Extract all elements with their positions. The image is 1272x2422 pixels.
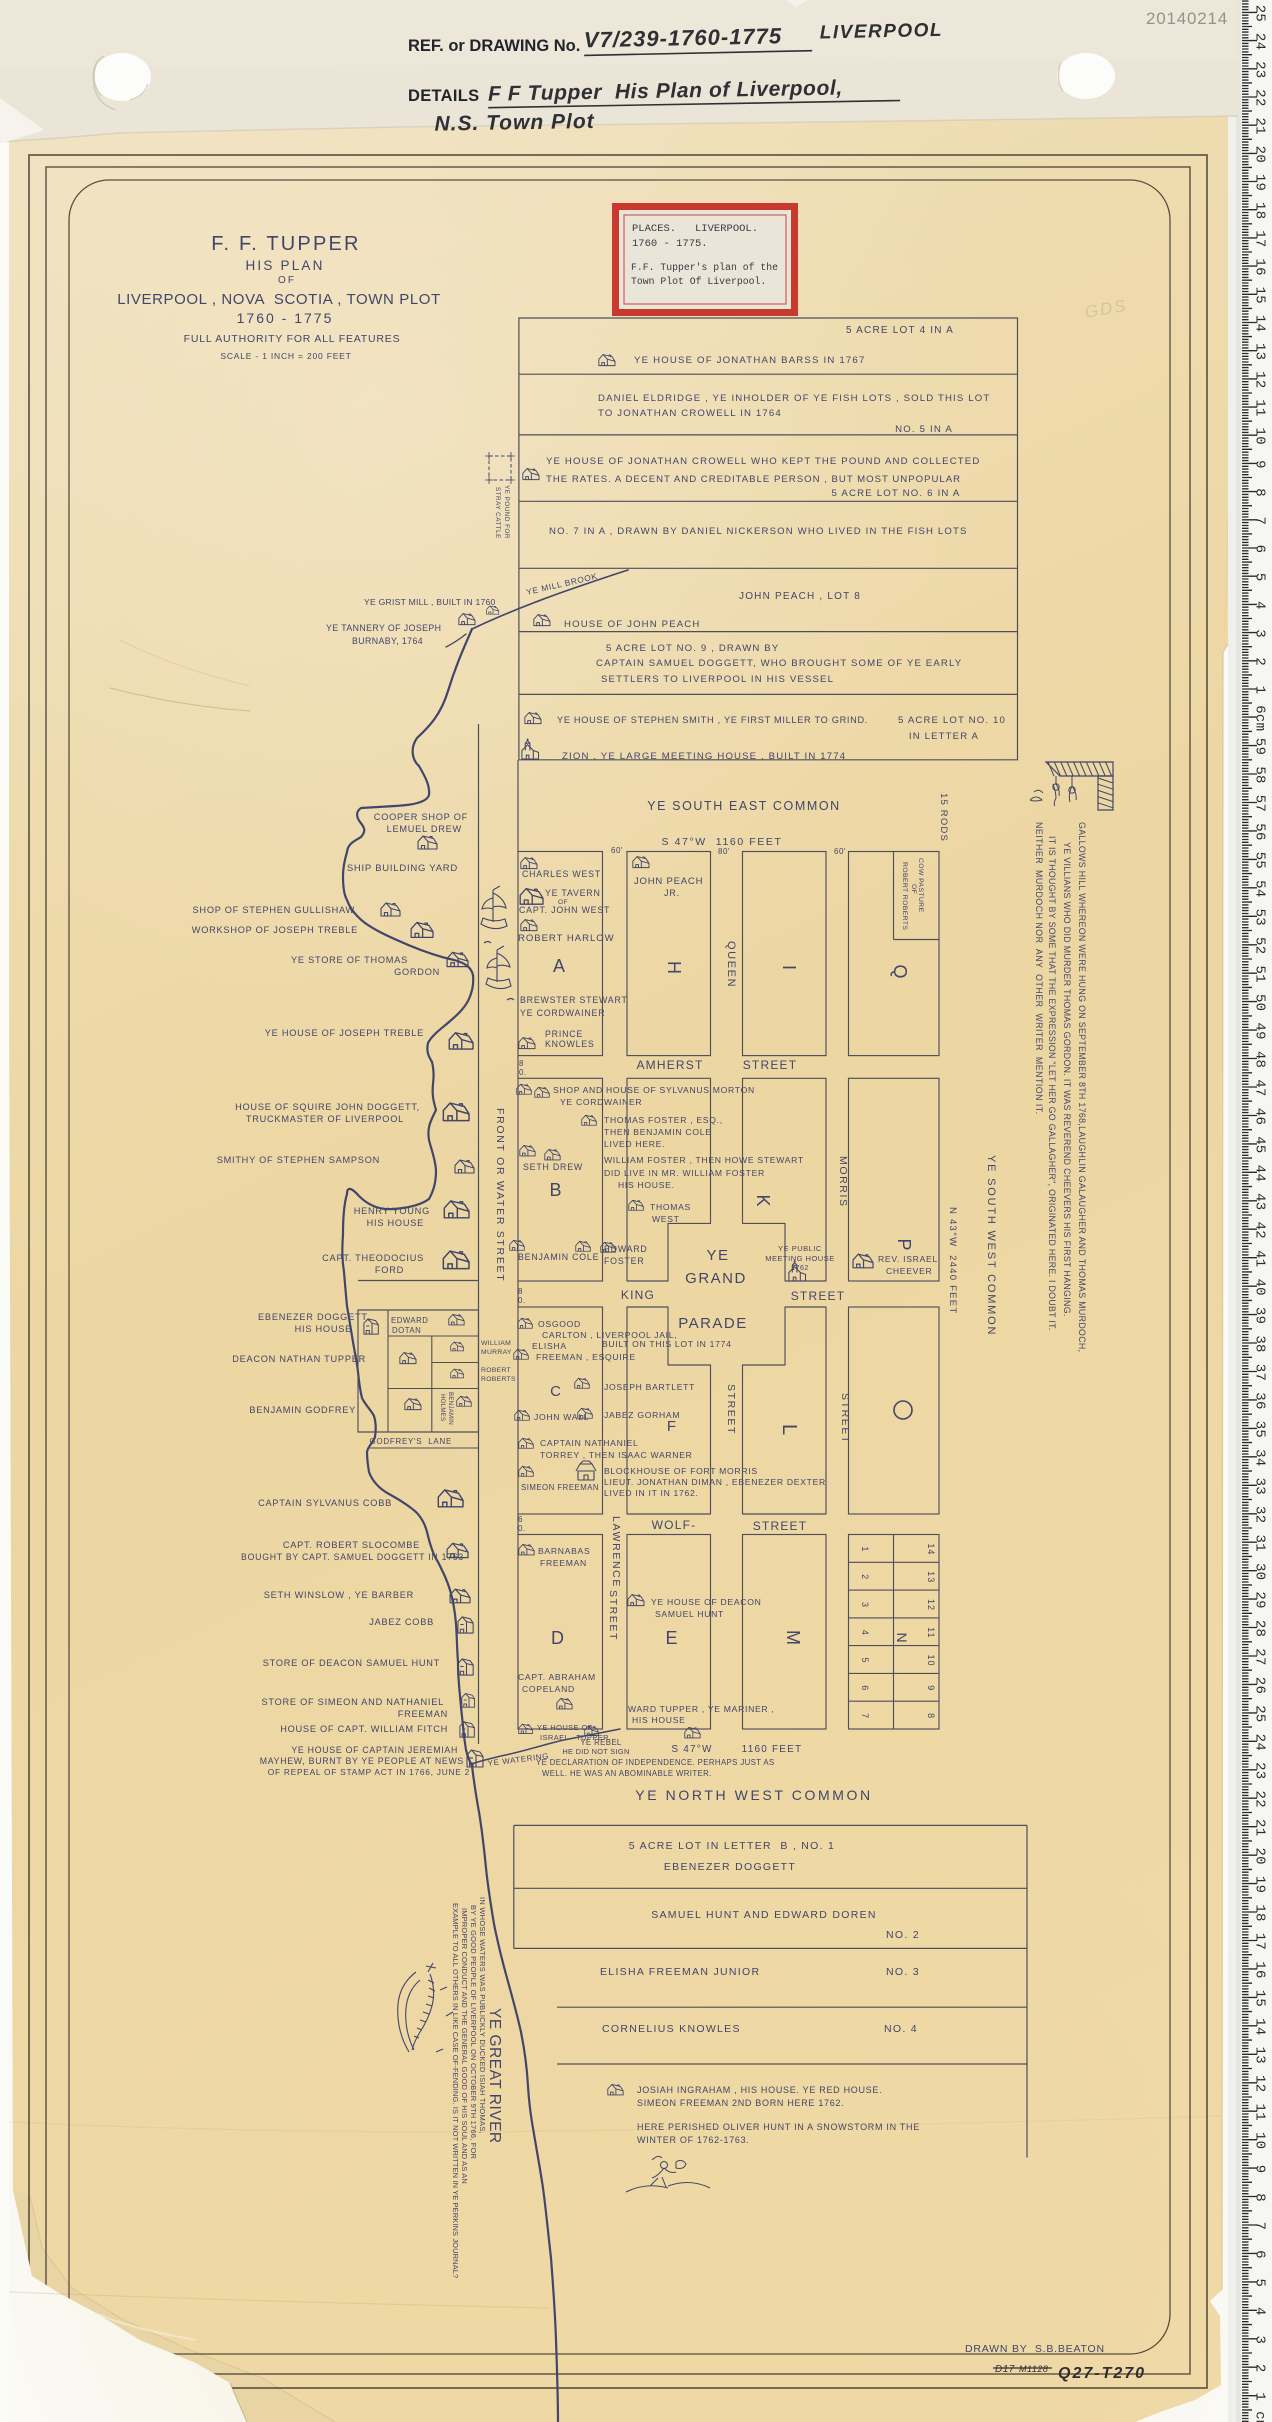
- svg-text:4: 4: [1252, 2307, 1268, 2316]
- svg-text:ELISHA FREEMAN JUNIOR: ELISHA FREEMAN JUNIOR: [600, 1966, 760, 1978]
- svg-text:OF REPEAL OF STAMP ACT IN 1766: OF REPEAL OF STAMP ACT IN 1766, JUNE 2: [268, 1767, 470, 1777]
- svg-text:C: C: [550, 1383, 562, 1400]
- svg-text:DEACON NATHAN TUPPER: DEACON NATHAN TUPPER: [232, 1354, 366, 1364]
- svg-text:THOMAS FOSTER , ESQ.,: THOMAS FOSTER , ESQ.,: [604, 1115, 723, 1125]
- svg-text:PARADE: PARADE: [678, 1315, 748, 1332]
- svg-text:13: 13: [926, 1571, 936, 1583]
- svg-text:BURNABY, 1764: BURNABY, 1764: [352, 636, 423, 646]
- svg-text:16: 16: [1252, 258, 1268, 275]
- svg-text:TORREY , THEN ISAAC WARNER: TORREY , THEN ISAAC WARNER: [540, 1450, 693, 1460]
- svg-text:7: 7: [860, 1713, 870, 1719]
- svg-text:EBENEZER DOGGETT: EBENEZER DOGGETT: [664, 1861, 796, 1873]
- svg-text:HIS PLAN: HIS PLAN: [245, 258, 324, 273]
- svg-text:HERE PERISHED OLIVER HUNT IN A: HERE PERISHED OLIVER HUNT IN A SNOWSTORM…: [637, 2122, 920, 2132]
- svg-text:OF: OF: [910, 884, 917, 894]
- svg-text:I: I: [779, 965, 799, 971]
- svg-text:NO. 4: NO. 4: [884, 2023, 918, 2035]
- svg-text:10: 10: [926, 1654, 936, 1666]
- svg-text:SETH DREW: SETH DREW: [523, 1162, 583, 1172]
- svg-text:CHARLES WEST: CHARLES WEST: [522, 869, 601, 879]
- svg-text:STREET: STREET: [743, 1058, 798, 1072]
- svg-text:H: H: [664, 961, 684, 975]
- svg-text:8: 8: [519, 1059, 524, 1068]
- svg-text:STREET: STREET: [607, 1590, 619, 1641]
- svg-text:JOSEPH BARTLETT: JOSEPH BARTLETT: [604, 1382, 695, 1392]
- svg-text:5 ACRE LOT NO. 6 IN A: 5 ACRE LOT NO. 6 IN A: [832, 488, 961, 499]
- svg-text:0.: 0.: [519, 1068, 527, 1077]
- svg-text:22: 22: [1252, 1791, 1268, 1808]
- svg-text:20: 20: [1252, 146, 1268, 163]
- svg-text:STREET: STREET: [791, 1289, 846, 1303]
- svg-text:YE HOUSE OF STEPHEN SMITH , YE: YE HOUSE OF STEPHEN SMITH , YE FIRST MIL…: [557, 715, 868, 725]
- svg-text:SIMEON FREEMAN: SIMEON FREEMAN: [521, 1483, 599, 1492]
- svg-text:DRAWN BY S.B.BEATON: DRAWN BY S.B.BEATON: [965, 2343, 1105, 2355]
- svg-text:ROBERT HARLOW: ROBERT HARLOW: [518, 933, 615, 944]
- svg-text:22: 22: [1252, 89, 1268, 106]
- svg-text:HOLMES: HOLMES: [439, 1394, 446, 1421]
- svg-text:LIVERPOOL , NOVA SCOTIA , TOW: LIVERPOOL , NOVA SCOTIA , TOWN PLOT: [117, 291, 441, 308]
- svg-text:SHIP BUILDING YARD: SHIP BUILDING YARD: [347, 863, 458, 874]
- svg-text:SHOP OF STEPHEN GULLISHAW: SHOP OF STEPHEN GULLISHAW: [193, 905, 355, 915]
- svg-text:HOUSE OF JOHN PEACH: HOUSE OF JOHN PEACH: [564, 619, 700, 630]
- svg-text:STREET: STREET: [753, 1519, 808, 1533]
- svg-text:57: 57: [1252, 795, 1268, 812]
- svg-text:MURRAY: MURRAY: [481, 1349, 512, 1356]
- svg-text:5: 5: [1252, 573, 1268, 582]
- svg-text:YE HOUSE OF JONATHAN CROWELL W: YE HOUSE OF JONATHAN CROWELL WHO KEPT TH…: [546, 456, 980, 467]
- svg-text:STREET: STREET: [839, 1393, 851, 1444]
- svg-text:STORE OF DEACON SAMUEL HUNT: STORE OF DEACON SAMUEL HUNT: [263, 1658, 440, 1668]
- svg-text:2: 2: [1252, 2364, 1268, 2373]
- svg-text:EBENEZER DOGGETT,: EBENEZER DOGGETT,: [258, 1312, 370, 1322]
- svg-text:JABEZ COBB: JABEZ COBB: [369, 1617, 434, 1627]
- svg-text:S 47°W: S 47°W: [671, 1744, 712, 1755]
- svg-text:YE SOUTH WEST COMMON: YE SOUTH WEST COMMON: [985, 1155, 997, 1336]
- svg-text:SAMUEL HUNT AND EDWARD DOREN: SAMUEL HUNT AND EDWARD DOREN: [651, 1909, 877, 1921]
- svg-text:1760 - 1775.: 1760 - 1775.: [632, 238, 708, 250]
- svg-text:LEMUEL DREW: LEMUEL DREW: [387, 824, 462, 834]
- svg-text:27: 27: [1252, 1648, 1268, 1665]
- svg-text:44: 44: [1252, 1165, 1268, 1182]
- svg-text:9: 9: [1252, 2165, 1268, 2174]
- svg-text:EXAMPLE TO ALL OTHERS IN LIKE: EXAMPLE TO ALL OTHERS IN LIKE CASE OF-FE…: [451, 1903, 460, 2278]
- svg-text:N.S. Town Plot: N.S. Town Plot: [434, 110, 595, 136]
- svg-text:GALLOWS HILL WHEREON WERE HUNG: GALLOWS HILL WHEREON WERE HUNG ON SEPTEM…: [1077, 822, 1087, 1352]
- svg-text:YE HOUSE OF JOSEPH TREBLE: YE HOUSE OF JOSEPH TREBLE: [265, 1028, 424, 1038]
- svg-text:37: 37: [1252, 1364, 1268, 1381]
- svg-text:47: 47: [1252, 1079, 1268, 1096]
- svg-text:YE DECLARATION OF INDEPENDENCE: YE DECLARATION OF INDEPENDENCE. PERHAPS …: [536, 1758, 775, 1767]
- svg-text:12: 12: [1252, 371, 1268, 388]
- svg-text:IMPROPER CONDUCT AND THE GENER: IMPROPER CONDUCT AND THE GENERAL GOOD OF…: [460, 1908, 469, 2184]
- svg-text:14: 14: [1252, 315, 1268, 332]
- svg-text:3: 3: [1252, 629, 1268, 638]
- svg-text:ROBERTS: ROBERTS: [481, 1376, 516, 1383]
- svg-text:29: 29: [1252, 1591, 1268, 1608]
- svg-text:STREET: STREET: [725, 1384, 737, 1435]
- svg-text:19: 19: [1252, 174, 1268, 191]
- svg-text:12: 12: [1252, 2075, 1268, 2092]
- svg-text:YE: YE: [706, 1247, 729, 1264]
- svg-text:ROBERT ROBERTS: ROBERT ROBERTS: [901, 862, 908, 930]
- svg-text:REV. ISRAEL: REV. ISRAEL: [878, 1254, 938, 1264]
- svg-text:WILLIAM: WILLIAM: [481, 1340, 511, 1347]
- svg-text:YE TANNERY OF JOSEPH: YE TANNERY OF JOSEPH: [326, 623, 441, 633]
- svg-text:SHOP AND HOUSE OF SYLVANUS MOR: SHOP AND HOUSE OF SYLVANUS MORTON: [553, 1085, 755, 1095]
- svg-text:51: 51: [1252, 965, 1268, 982]
- svg-text:L: L: [778, 1424, 800, 1436]
- svg-text:YE NORTH WEST COMMON: YE NORTH WEST COMMON: [635, 1787, 872, 1803]
- svg-text:CAPT. THEODOCIUS: CAPT. THEODOCIUS: [322, 1253, 424, 1263]
- svg-text:54: 54: [1252, 880, 1268, 897]
- svg-text:NO. 7 IN A , DRAWN BY DANIEL N: NO. 7 IN A , DRAWN BY DANIEL NICKERSON W…: [549, 526, 968, 537]
- svg-text:55: 55: [1252, 852, 1268, 869]
- svg-text:DETAILS: DETAILS: [408, 87, 479, 105]
- svg-text:MAYHEW, BURNT BY YE PEOPLE AT: MAYHEW, BURNT BY YE PEOPLE AT NEWS: [260, 1756, 464, 1766]
- svg-text:39: 39: [1252, 1307, 1268, 1324]
- svg-text:Town Plot Of Liverpool.: Town Plot Of Liverpool.: [631, 276, 766, 287]
- svg-text:YE HOUSE OF DEACON: YE HOUSE OF DEACON: [651, 1597, 762, 1607]
- svg-text:36: 36: [1252, 1392, 1268, 1409]
- svg-text:IT IS THOUGHT BY SOME THAT THE: IT IS THOUGHT BY SOME THAT THE EXPRESSIO…: [1047, 836, 1057, 1331]
- svg-text:LIVED HERE.: LIVED HERE.: [604, 1139, 665, 1149]
- svg-text:CAPTAIN SYLVANUS COBB: CAPTAIN SYLVANUS COBB: [258, 1498, 392, 1508]
- svg-text:1160 FEET: 1160 FEET: [742, 1744, 803, 1755]
- svg-text:YE GREAT RIVER: YE GREAT RIVER: [486, 2008, 503, 2144]
- svg-text:TO JONATHAN CROWELL IN 1764: TO JONATHAN CROWELL IN 1764: [598, 408, 782, 419]
- svg-text:M: M: [783, 1630, 803, 1646]
- svg-text:cm: cm: [1252, 2411, 1268, 2422]
- svg-text:MEETING HOUSE: MEETING HOUSE: [765, 1254, 834, 1263]
- svg-text:5 ACRE LOT NO. 10: 5 ACRE LOT NO. 10: [898, 715, 1006, 726]
- svg-text:9: 9: [926, 1685, 936, 1691]
- svg-text:N 43°W 2440 FEET: N 43°W 2440 FEET: [947, 1207, 958, 1314]
- svg-text:ELISHA: ELISHA: [532, 1341, 567, 1351]
- svg-text:19: 19: [1252, 1876, 1268, 1893]
- svg-text:THE RATES. A DECENT AND CREDIT: THE RATES. A DECENT AND CREDITABLE PERSO…: [546, 474, 961, 485]
- svg-text:1762: 1762: [791, 1265, 809, 1272]
- svg-text:SETH WINSLOW , YE BARBER: SETH WINSLOW , YE BARBER: [264, 1590, 414, 1600]
- svg-text:M1128: M1128: [1019, 2364, 1048, 2374]
- svg-text:4: 4: [860, 1630, 870, 1636]
- svg-text:GORDON: GORDON: [394, 967, 440, 977]
- svg-text:HIS HOUSE.: HIS HOUSE.: [618, 1180, 675, 1190]
- svg-text:TRUCKMASTER OF LIVERPOOL: TRUCKMASTER OF LIVERPOOL: [246, 1114, 404, 1124]
- svg-text:COOPER SHOP OF: COOPER SHOP OF: [374, 812, 468, 822]
- svg-text:24: 24: [1252, 1734, 1268, 1751]
- svg-text:21: 21: [1252, 117, 1268, 134]
- svg-text:0.: 0.: [518, 1296, 526, 1305]
- svg-text:N: N: [894, 1632, 910, 1643]
- svg-text:12: 12: [926, 1599, 936, 1611]
- svg-text:E: E: [665, 1628, 678, 1648]
- svg-text:D17: D17: [995, 2364, 1015, 2375]
- svg-text:PLACES. LIVERPOOL.: PLACES. LIVERPOOL.: [632, 223, 758, 235]
- svg-text:HENRY YOUNG: HENRY YOUNG: [354, 1206, 430, 1216]
- svg-text:JOSIAH INGRAHAM , HIS HOUSE. Y: JOSIAH INGRAHAM , HIS HOUSE. YE RED HOUS…: [637, 2085, 882, 2095]
- svg-text:WINTER OF 1762-1763.: WINTER OF 1762-1763.: [637, 2135, 750, 2145]
- svg-text:LIVERPOOL: LIVERPOOL: [820, 20, 944, 44]
- svg-text:WELL. HE WAS AN ABOMINABLE WRI: WELL. HE WAS AN ABOMINABLE WRITER.: [542, 1769, 712, 1778]
- svg-text:32: 32: [1252, 1506, 1268, 1523]
- svg-text:GRAND: GRAND: [685, 1270, 747, 1287]
- svg-text:CAPT. JOHN WEST: CAPT. JOHN WEST: [519, 905, 610, 915]
- svg-text:YE SOUTH EAST COMMON: YE SOUTH EAST COMMON: [647, 799, 841, 813]
- svg-text:Q: Q: [890, 964, 910, 979]
- svg-text:50: 50: [1252, 994, 1268, 1011]
- svg-text:NO. 5 IN A: NO. 5 IN A: [895, 424, 953, 435]
- svg-text:WOLF-: WOLF-: [652, 1518, 697, 1532]
- svg-text:F.F. Tupper's plan of the: F.F. Tupper's plan of the: [631, 262, 778, 273]
- svg-text:11: 11: [1252, 2103, 1268, 2120]
- svg-text:6: 6: [1252, 2250, 1268, 2259]
- svg-text:33: 33: [1252, 1478, 1268, 1495]
- svg-text:6: 6: [518, 1515, 523, 1524]
- svg-text:31: 31: [1252, 1534, 1268, 1551]
- svg-text:NO. 3: NO. 3: [886, 1966, 920, 1978]
- svg-text:ZION , YE LARGE MEETING HOUSE: ZION , YE LARGE MEETING HOUSE , BUILT IN…: [562, 751, 846, 762]
- svg-text:SMITHY OF STEPHEN SAMPSON: SMITHY OF STEPHEN SAMPSON: [217, 1155, 380, 1165]
- svg-text:80': 80': [718, 847, 730, 856]
- svg-text:10: 10: [1252, 2132, 1268, 2149]
- svg-text:COPELAND: COPELAND: [522, 1684, 575, 1694]
- svg-text:FORD: FORD: [375, 1265, 404, 1275]
- svg-text:OSGOOD: OSGOOD: [538, 1319, 581, 1329]
- svg-text:YE CORDWAINER: YE CORDWAINER: [520, 1008, 605, 1018]
- svg-text:BARNABAS: BARNABAS: [538, 1546, 590, 1556]
- svg-text:1: 1: [1252, 686, 1268, 695]
- svg-text:SCALE - 1 INCH = 200 FEET: SCALE - 1 INCH = 200 FEET: [220, 351, 351, 361]
- svg-text:21: 21: [1252, 1819, 1268, 1836]
- svg-text:BUILT ON THIS LOT IN 1774: BUILT ON THIS LOT IN 1774: [602, 1339, 732, 1349]
- svg-text:26: 26: [1252, 1677, 1268, 1694]
- svg-text:DOTAN: DOTAN: [392, 1326, 421, 1335]
- svg-text:11: 11: [1252, 399, 1268, 416]
- svg-text:5 ACRE LOT NO. 9 , DRAWN BY: 5 ACRE LOT NO. 9 , DRAWN BY: [606, 643, 779, 654]
- svg-text:3: 3: [860, 1602, 870, 1608]
- svg-text:SIMEON FREEMAN 2ND BORN HERE 1: SIMEON FREEMAN 2ND BORN HERE 1762.: [637, 2098, 844, 2108]
- svg-text:5: 5: [1252, 2279, 1268, 2288]
- svg-text:8: 8: [1252, 2193, 1268, 2202]
- svg-text:P: P: [894, 1238, 914, 1251]
- svg-text:NEITHER MURDOCH NOR ANY OTH: NEITHER MURDOCH NOR ANY OTHER WRITER MEN…: [1034, 822, 1044, 1115]
- svg-text:CAPT. ABRAHAM: CAPT. ABRAHAM: [518, 1672, 596, 1682]
- svg-text:FREEMAN: FREEMAN: [398, 1709, 448, 1719]
- svg-text:WILLIAM FOSTER , THEN HOWE STE: WILLIAM FOSTER , THEN HOWE STEWART: [604, 1155, 804, 1165]
- svg-text:IN LETTER A: IN LETTER A: [909, 731, 979, 742]
- svg-text:10: 10: [1252, 428, 1268, 445]
- svg-text:SAMUEL HUNT: SAMUEL HUNT: [655, 1609, 724, 1619]
- svg-text:49: 49: [1252, 1022, 1268, 1039]
- svg-text:V7/239-1760-1775: V7/239-1760-1775: [584, 23, 783, 52]
- svg-text:BENJAMIN GODFREY: BENJAMIN GODFREY: [249, 1405, 356, 1415]
- svg-text:7: 7: [1252, 2222, 1268, 2231]
- svg-text:REF. or DRAWING No.: REF. or DRAWING No.: [408, 37, 580, 55]
- svg-text:BY YE GOOD PEOPLE OF LIVERPOOL: BY YE GOOD PEOPLE OF LIVERPOOL ON OCTOBE…: [469, 1905, 478, 2160]
- svg-text:D: D: [551, 1628, 565, 1648]
- svg-text:11: 11: [926, 1627, 936, 1638]
- svg-text:WARD TUPPER , YE MARINER ,: WARD TUPPER , YE MARINER ,: [628, 1704, 775, 1714]
- svg-text:QUEEN: QUEEN: [725, 941, 737, 988]
- svg-text:HOUSE OF CAPT. WILLIAM FITCH: HOUSE OF CAPT. WILLIAM FITCH: [280, 1724, 448, 1734]
- svg-text:LIVED IN IT IN 1762.: LIVED IN IT IN 1762.: [604, 1488, 699, 1498]
- svg-text:YE REBEL: YE REBEL: [580, 1738, 622, 1747]
- svg-text:52: 52: [1252, 937, 1268, 954]
- svg-text:THOMAS: THOMAS: [650, 1202, 691, 1212]
- svg-text:HIS HOUSE: HIS HOUSE: [295, 1324, 352, 1334]
- svg-text:45: 45: [1252, 1136, 1268, 1153]
- svg-text:2: 2: [860, 1574, 870, 1580]
- svg-text:EDWARD: EDWARD: [391, 1316, 428, 1325]
- svg-text:CHEEVER: CHEEVER: [886, 1266, 932, 1276]
- svg-text:JOHN PEACH , LOT 8: JOHN PEACH , LOT 8: [739, 591, 861, 602]
- svg-text:24: 24: [1252, 33, 1268, 50]
- svg-text:1: 1: [860, 1546, 870, 1552]
- svg-text:LAWRENCE: LAWRENCE: [610, 1516, 622, 1588]
- svg-text:F. F. TUPPER: F. F. TUPPER: [211, 233, 360, 255]
- svg-text:THEN BENJAMIN COLE: THEN BENJAMIN COLE: [604, 1127, 712, 1137]
- svg-text:46: 46: [1252, 1108, 1268, 1125]
- svg-text:8: 8: [518, 1287, 523, 1296]
- svg-text:CAPTAIN NATHANIEL: CAPTAIN NATHANIEL: [540, 1438, 639, 1448]
- svg-text:MORRIS: MORRIS: [837, 1156, 849, 1208]
- svg-text:HE DID NOT SIGN: HE DID NOT SIGN: [562, 1747, 629, 1756]
- svg-text:FULL AUTHORITY FOR ALL FEATURE: FULL AUTHORITY FOR ALL FEATURES: [184, 333, 401, 345]
- svg-text:5: 5: [860, 1657, 870, 1663]
- svg-text:BOUGHT BY CAPT. SAMUEL DOGGETT: BOUGHT BY CAPT. SAMUEL DOGGETT IN 1763: [241, 1552, 464, 1562]
- svg-text:WORKSHOP OF JOSEPH TREBLE: WORKSHOP OF JOSEPH TREBLE: [192, 925, 358, 935]
- svg-text:16: 16: [1252, 1961, 1268, 1978]
- svg-text:STORE OF SIMEON AND NATHANIEL: STORE OF SIMEON AND NATHANIEL: [262, 1697, 445, 1707]
- svg-text:CAPT. ROBERT SLOCOMBE: CAPT. ROBERT SLOCOMBE: [283, 1540, 420, 1550]
- svg-text:1: 1: [1252, 2392, 1268, 2401]
- svg-text:LIEUT. JONATHAN DIMAN , EBENEZ: LIEUT. JONATHAN DIMAN , EBENEZER DEXTER: [604, 1477, 826, 1487]
- svg-text:CORNELIUS KNOWLES: CORNELIUS KNOWLES: [602, 2023, 741, 2035]
- svg-text:HIS HOUSE: HIS HOUSE: [367, 1218, 424, 1228]
- svg-text:AMHERST: AMHERST: [636, 1058, 703, 1072]
- svg-text:ROBERT: ROBERT: [481, 1367, 511, 1374]
- svg-text:43: 43: [1252, 1193, 1268, 1210]
- svg-text:FRONT OR WATER STREET: FRONT OR WATER STREET: [494, 1108, 506, 1282]
- svg-text:1760 - 1775: 1760 - 1775: [237, 310, 334, 326]
- svg-text:42: 42: [1252, 1222, 1268, 1239]
- svg-text:17: 17: [1252, 230, 1268, 247]
- svg-text:15: 15: [1252, 287, 1268, 304]
- svg-text:15: 15: [1252, 1990, 1268, 2007]
- svg-text:14: 14: [926, 1543, 936, 1555]
- svg-text:8: 8: [926, 1713, 936, 1719]
- svg-text:Q27-T270: Q27-T270: [1058, 2365, 1146, 2382]
- svg-text:20140214: 20140214: [1146, 9, 1228, 28]
- svg-text:DID LIVE IN MR. WILLIAM FOSTER: DID LIVE IN MR. WILLIAM FOSTER: [604, 1168, 765, 1178]
- svg-text:5 ACRE LOT 4 IN A: 5 ACRE LOT 4 IN A: [846, 325, 954, 336]
- svg-text:18: 18: [1252, 1904, 1268, 1921]
- svg-text:25: 25: [1252, 5, 1268, 22]
- svg-text:PRINCE: PRINCE: [545, 1029, 583, 1039]
- svg-text:GODFREY'S LANE: GODFREY'S LANE: [370, 1437, 452, 1446]
- svg-text:28: 28: [1252, 1620, 1268, 1637]
- svg-text:IN WHOSE WATERS WAS PUBLICKLY: IN WHOSE WATERS WAS PUBLICKLY DUCKED ISI…: [478, 1897, 487, 2134]
- svg-text:30: 30: [1252, 1563, 1268, 1580]
- svg-text:23: 23: [1252, 1762, 1268, 1779]
- svg-text:25: 25: [1252, 1705, 1268, 1722]
- svg-text:4: 4: [1252, 601, 1268, 610]
- svg-text:YE HOUSE OF JONATHAN BARSS IN: YE HOUSE OF JONATHAN BARSS IN 1767: [634, 355, 865, 366]
- svg-text:BREWSTER STEWART: BREWSTER STEWART: [520, 995, 628, 1005]
- svg-text:BENJAMIN COLE: BENJAMIN COLE: [518, 1252, 599, 1262]
- svg-text:41: 41: [1252, 1250, 1268, 1267]
- svg-text:14: 14: [1252, 2018, 1268, 2035]
- svg-text:CAPTAIN SAMUEL DOGGETT, WHO BR: CAPTAIN SAMUEL DOGGETT, WHO BROUGHT SOME…: [596, 658, 962, 669]
- svg-text:NO. 2: NO. 2: [886, 1929, 920, 1941]
- svg-text:56: 56: [1252, 823, 1268, 840]
- svg-text:3: 3: [1252, 2335, 1268, 2344]
- svg-text:YE STORE OF THOMAS: YE STORE OF THOMAS: [291, 955, 408, 965]
- svg-text:SETTLERS TO LIVERPOOL IN HIS V: SETTLERS TO LIVERPOOL IN HIS VESSEL: [601, 674, 834, 685]
- svg-text:6: 6: [860, 1685, 870, 1691]
- svg-text:13: 13: [1252, 2047, 1268, 2064]
- svg-text:YE CORDWAINER: YE CORDWAINER: [560, 1097, 642, 1107]
- svg-text:STRAY CATTLE: STRAY CATTLE: [494, 487, 501, 539]
- svg-text:9: 9: [1252, 460, 1268, 469]
- svg-text:34: 34: [1252, 1449, 1268, 1466]
- svg-text:6: 6: [1252, 545, 1268, 554]
- svg-text:COW PASTURE: COW PASTURE: [917, 858, 924, 913]
- svg-text:B: B: [549, 1180, 562, 1200]
- svg-text:K: K: [753, 1194, 773, 1207]
- svg-text:38: 38: [1252, 1335, 1268, 1352]
- svg-text:48: 48: [1252, 1051, 1268, 1068]
- svg-text:YE VILLIANS WHO DID MURDER THO: YE VILLIANS WHO DID MURDER THOMAS GORDON…: [1062, 842, 1072, 1317]
- svg-text:5 ACRE LOT IN LETTER B , NO.: 5 ACRE LOT IN LETTER B , NO. 1: [629, 1840, 835, 1852]
- svg-text:KING: KING: [621, 1288, 655, 1302]
- svg-text:HIS HOUSE: HIS HOUSE: [632, 1715, 686, 1725]
- svg-text:FREEMAN , ESQUIRE: FREEMAN , ESQUIRE: [536, 1352, 636, 1362]
- svg-text:2: 2: [1252, 657, 1268, 666]
- svg-text:40: 40: [1252, 1278, 1268, 1295]
- svg-text:JOHN WALL: JOHN WALL: [534, 1412, 589, 1422]
- svg-text:20: 20: [1252, 1847, 1268, 1864]
- svg-text:A: A: [553, 956, 565, 976]
- svg-text:YE GRIST MILL , BUILT IN 1760: YE GRIST MILL , BUILT IN 1760: [364, 597, 496, 607]
- svg-text:60': 60': [834, 847, 846, 856]
- svg-text:YE PUBLIC: YE PUBLIC: [778, 1244, 822, 1253]
- svg-text:YE POUND FOR: YE POUND FOR: [503, 485, 510, 539]
- svg-text:17: 17: [1252, 1933, 1268, 1950]
- svg-text:HOUSE OF SQUIRE JOHN DOGGETT,: HOUSE OF SQUIRE JOHN DOGGETT,: [235, 1102, 420, 1112]
- svg-text:FOSTER: FOSTER: [604, 1256, 644, 1266]
- svg-text:15 RODS: 15 RODS: [938, 793, 949, 842]
- svg-text:53: 53: [1252, 909, 1268, 926]
- svg-text:DANIEL ELDRIDGE , YE INHOLDER: DANIEL ELDRIDGE , YE INHOLDER OF YE FISH…: [598, 393, 990, 404]
- svg-text:18: 18: [1252, 202, 1268, 219]
- svg-text:23: 23: [1252, 61, 1268, 78]
- svg-text:13: 13: [1252, 343, 1268, 360]
- svg-text:6cm: 6cm: [1252, 705, 1268, 731]
- svg-text:EDWARD: EDWARD: [604, 1244, 648, 1254]
- svg-text:58: 58: [1252, 766, 1268, 783]
- svg-text:0.: 0.: [518, 1524, 526, 1533]
- svg-text:OF: OF: [278, 275, 296, 286]
- svg-text:59: 59: [1252, 738, 1268, 755]
- svg-text:BENJAMIN: BENJAMIN: [447, 1392, 454, 1425]
- svg-text:KNOWLES: KNOWLES: [545, 1039, 595, 1049]
- svg-text:FREEMAN: FREEMAN: [540, 1558, 587, 1568]
- svg-text:8: 8: [1252, 488, 1268, 497]
- svg-text:JOHN PEACH: JOHN PEACH: [634, 876, 703, 887]
- svg-text:WEST: WEST: [652, 1214, 680, 1224]
- svg-text:7: 7: [1252, 516, 1268, 525]
